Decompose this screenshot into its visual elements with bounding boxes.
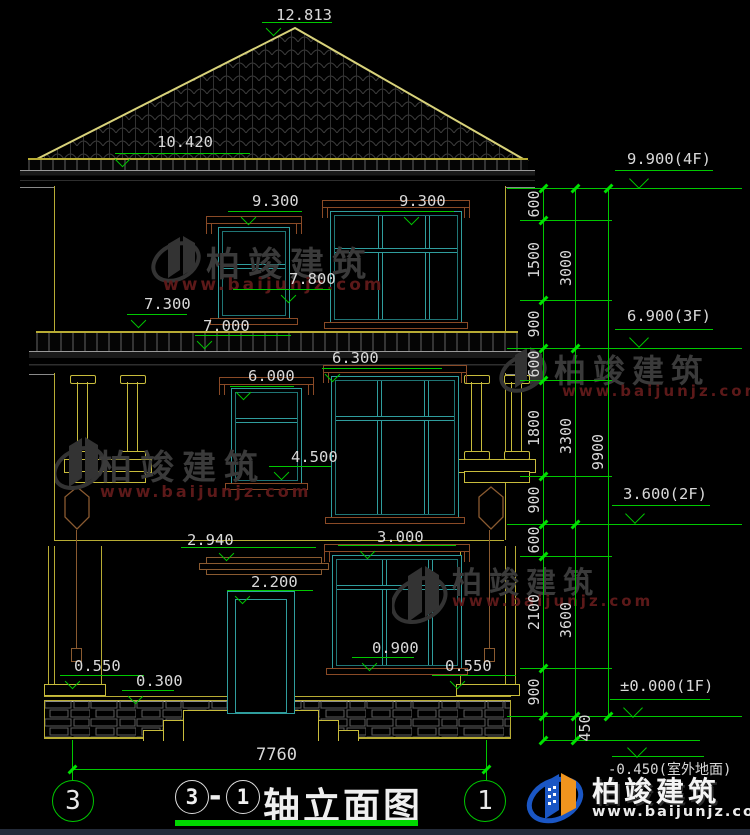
elevation-label: 0.300 <box>136 672 183 690</box>
elevation-label: 3.000 <box>377 528 424 546</box>
level-marker-line <box>615 170 713 171</box>
width-dim-value: 7760 <box>256 745 297 765</box>
elevation-label: 6.300 <box>332 349 379 367</box>
dim-extension-line <box>486 740 487 780</box>
elevation-marker-line <box>115 153 250 154</box>
window-mullion <box>377 381 382 514</box>
window-mullion <box>378 216 383 319</box>
dim-value: 900 <box>525 310 543 337</box>
brand-watermark-url: www.baijunjz.com <box>452 592 653 610</box>
level-extension-line <box>543 740 700 741</box>
window-inner-frame <box>335 380 455 515</box>
bottom-strip <box>0 829 750 835</box>
entry-door <box>227 591 295 714</box>
dim-chain-line <box>608 188 609 716</box>
level-marker-triangle <box>629 169 649 189</box>
elevation-label: 9.300 <box>252 192 299 210</box>
elevation-marker-line <box>338 545 456 546</box>
elevation-drawing-canvas: 柏竣建筑 www.baijunjz.com 柏竣建筑 www.baijunjz.… <box>0 0 750 835</box>
column-shaft <box>471 382 482 452</box>
elevation-label: 0.550 <box>445 657 492 675</box>
elevation-label: 0.550 <box>74 657 121 675</box>
title-axis-bubble-left: 3 <box>175 780 209 814</box>
brand-logo-url: www.baijunjz.com <box>592 804 750 820</box>
lantern-ornament <box>478 486 504 530</box>
elevation-marker-line <box>380 211 454 212</box>
dim-value: 3000 <box>557 250 575 286</box>
elevation-marker-line <box>352 657 414 658</box>
axis-number: 3 <box>65 786 81 816</box>
dim-extension-line <box>520 300 612 301</box>
level-marker-line <box>610 699 710 700</box>
elevation-marker-line <box>228 211 302 212</box>
dim-value: 600 <box>525 350 543 377</box>
dim-value: 1500 <box>525 242 543 278</box>
axis-number: 3 <box>186 785 199 809</box>
dim-value: 900 <box>525 678 543 705</box>
roof-hip <box>25 16 530 162</box>
level-marker-line <box>615 329 713 330</box>
dim-extension-line <box>520 668 612 669</box>
level-label: 6.900(3F) <box>627 307 711 325</box>
elevation-label: 10.420 <box>157 133 213 151</box>
window-mullion <box>424 381 429 514</box>
brand-watermark-url: www.baijunjz.com <box>163 275 385 295</box>
elevation-label: 0.900 <box>372 639 419 657</box>
elevation-label: 4.500 <box>291 448 338 466</box>
dim-value: 450 <box>576 714 594 741</box>
window-2f-right <box>331 376 459 519</box>
brand-logo-icon <box>525 764 587 828</box>
title-dash: - <box>209 779 224 814</box>
elevation-label: 7.000 <box>203 317 250 335</box>
elevation-marker-line <box>432 675 516 676</box>
dim-value: 3600 <box>557 602 575 638</box>
dim-extension-line <box>520 476 612 477</box>
elevation-label: 7.300 <box>144 295 191 313</box>
axis-bubble-left: 3 <box>52 780 94 822</box>
elevation-label: 6.000 <box>248 367 295 385</box>
brand-watermark-url: www.baijunjz.com <box>100 482 311 501</box>
elevation-label: 7.800 <box>289 270 336 288</box>
dim-value: 1800 <box>525 410 543 446</box>
elevation-marker-line <box>181 547 316 548</box>
window-mullion <box>425 216 430 319</box>
dim-value: 600 <box>525 190 543 217</box>
axis-number: 1 <box>237 785 250 809</box>
level-marker-triangle <box>625 504 645 524</box>
dim-extension-line <box>520 220 612 221</box>
brand-watermark-icon <box>392 552 448 638</box>
level-marker-line <box>612 505 710 506</box>
elevation-label: 2.200 <box>251 573 298 591</box>
level-marker-line <box>612 756 704 757</box>
elevation-label: 9.300 <box>399 192 446 210</box>
window-lintel <box>322 200 470 208</box>
level-label: 3.600(2F) <box>623 485 707 503</box>
pier-cap-right <box>456 684 520 696</box>
brand-watermark-url: www.baijunjz.com <box>562 382 750 400</box>
column-pedestal <box>464 471 530 483</box>
level-marker-triangle <box>629 328 649 348</box>
level-marker-triangle <box>627 738 647 758</box>
window-mullion <box>336 416 454 421</box>
dim-value: 600 <box>525 526 543 553</box>
level-label: ±0.000(1F) <box>620 677 713 695</box>
dim-extension-line <box>72 740 73 780</box>
dim-value: 900 <box>525 486 543 513</box>
level-label: 9.900(4F) <box>627 150 711 168</box>
entry-step-1 <box>183 710 319 741</box>
elevation-marker-line <box>233 289 331 290</box>
elevation-marker-line <box>122 690 174 691</box>
level-marker-triangle <box>623 698 643 718</box>
axis-bubble-right: 1 <box>464 780 506 822</box>
dim-value: 2100 <box>525 594 543 630</box>
door-panel <box>235 599 287 713</box>
elevation-marker-line <box>322 368 442 369</box>
elevation-marker-line <box>195 335 291 336</box>
width-dim-line <box>72 769 486 770</box>
window-mullion <box>236 418 297 423</box>
dim-value: 3300 <box>557 418 575 454</box>
window-sill <box>324 322 468 329</box>
dim-value: 9900 <box>589 434 607 470</box>
dim-chain-line <box>575 188 576 740</box>
title-axis-bubble-right: 1 <box>226 780 260 814</box>
dim-extension-line <box>520 380 612 381</box>
window-sill <box>325 517 465 524</box>
dim-extension-line <box>520 556 612 557</box>
dim-chain-line <box>543 188 544 740</box>
title-underline <box>175 820 418 826</box>
axis-number: 1 <box>477 786 493 816</box>
